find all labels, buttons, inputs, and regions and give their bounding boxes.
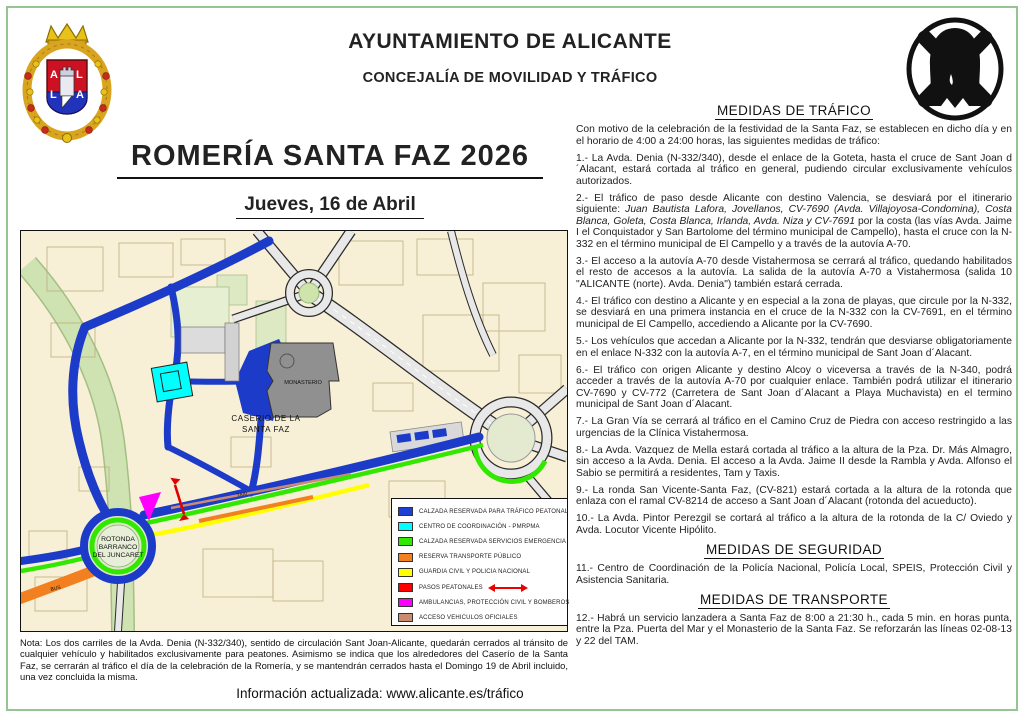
svg-text:L: L	[76, 69, 83, 81]
coordination-center	[151, 362, 192, 402]
traffic-measures-heading: MEDIDAS DE TRÁFICO	[576, 103, 1012, 118]
legend-color-swatch	[398, 583, 413, 592]
legend-label: CENTRO DE COORDINACIÓN - PMRPMA	[419, 524, 540, 530]
traffic-measure-item: 5.- Los vehículos que accedan a Alicante…	[576, 336, 1012, 359]
traffic-map: MONASTERIO CASERIO DE LA SANTA FAZ ROTON…	[20, 230, 568, 632]
svg-text:DEL JUNCARET: DEL JUNCARET	[92, 552, 143, 559]
svg-text:SANTA FAZ: SANTA FAZ	[242, 425, 290, 434]
red-double-arrow-icon	[491, 587, 525, 589]
legend-color-swatch	[398, 522, 413, 531]
alicante-coat-of-arms: AL LA	[18, 20, 116, 144]
legend-item: CENTRO DE COORDINACIÓN - PMRPMA	[398, 520, 562, 533]
svg-text:L: L	[50, 89, 57, 101]
legend-color-swatch	[398, 553, 413, 562]
transport-measures-heading: MEDIDAS DE TRANSPORTE	[576, 592, 1012, 607]
map-legend: CALZADA RESERVADA PARA TRÁFICO PEATONAL …	[391, 498, 568, 626]
legend-color-swatch	[398, 537, 413, 546]
legend-label: CALZADA RESERVADA SERVICIOS EMERGENCIA	[419, 539, 566, 545]
event-title: ROMERÍA SANTA FAZ 2026	[40, 140, 620, 179]
info-url-line: Información actualizada: www.alicante.es…	[160, 686, 600, 701]
transport-measure-item: 12.- Habrá un servicio lanzadera a Santa…	[576, 613, 1012, 648]
svg-text:A: A	[76, 89, 84, 101]
measures-column: MEDIDAS DE TRÁFICO Con motivo de la cele…	[576, 100, 1012, 653]
legend-label: ACCESO VEHICULOS OFICIALES	[419, 615, 518, 621]
legend-label: GUARDIA CIVIL Y POLICIA NACIONAL	[419, 569, 530, 575]
org-title: AYUNTAMIENTO DE ALICANTE	[130, 30, 890, 54]
legend-color-swatch	[398, 568, 413, 577]
traffic-measure-item: 6.- El tráfico con origen Alicante y des…	[576, 365, 1012, 411]
legend-label: AMBULANCIAS, PROTECCIÓN CIVIL Y BOMBEROS	[419, 600, 570, 606]
svg-text:MONASTERIO: MONASTERIO	[284, 380, 322, 386]
legend-item: CALZADA RESERVADA PARA TRÁFICO PEATONAL	[398, 505, 562, 518]
traffic-measure-item: 8.- La Avda. Vazquez de Mella estará cor…	[576, 445, 1012, 480]
security-measures-heading: MEDIDAS DE SEGURIDAD	[576, 542, 1012, 557]
security-measure-item: 11.- Centro de Coordinación de la Policí…	[576, 563, 1012, 586]
svg-text:ROTONDA: ROTONDA	[101, 536, 135, 543]
legend-label: CALZADA RESERVADA PARA TRÁFICO PEATONAL	[419, 509, 568, 515]
traffic-measure-item: 7.- La Gran Vía se cerrará al tráfico en…	[576, 416, 1012, 439]
traffic-measure-item: 9.- La ronda San Vicente-Santa Faz, (CV-…	[576, 485, 1012, 508]
traffic-measure-item: 2.- El tráfico de paso desde Alicante co…	[576, 193, 1012, 251]
svg-text:BARRANCO: BARRANCO	[99, 544, 138, 551]
event-date: Jueves, 16 de Abril	[40, 194, 620, 219]
svg-text:A: A	[50, 69, 58, 81]
traffic-measure-item: 10.- La Avda. Pintor Perezgil se cortará…	[576, 513, 1012, 536]
legend-item: CALZADA RESERVADA SERVICIOS EMERGENCIA	[398, 535, 562, 548]
legend-item: GUARDIA CIVIL Y POLICIA NACIONAL	[398, 566, 562, 579]
legend-color-swatch	[398, 507, 413, 516]
traffic-intro: Con motivo de la celebración de la festi…	[576, 124, 1012, 147]
dept-subtitle: CONCEJALÍA DE MOVILIDAD Y TRÁFICO	[130, 70, 890, 86]
header: AYUNTAMIENTO DE ALICANTE CONCEJALÍA DE M…	[130, 30, 890, 86]
legend-item: ACCESO VEHICULOS OFICIALES	[398, 611, 562, 624]
traffic-measure-item: 3.- El acceso a la autovía A-70 desde Vi…	[576, 256, 1012, 291]
legend-label: PASOS PEATONALES	[419, 585, 483, 591]
legend-item: RESERVA TRANSPORTE PÚBLICO	[398, 551, 562, 564]
legend-color-swatch	[398, 598, 413, 607]
footnote: Nota: Los dos carriles de la Avda. Denia…	[20, 637, 568, 683]
traffic-measure-item: 1.- La Avda. Denia (N-332/340), desde el…	[576, 153, 1012, 188]
flyer-page: AL LA AYUNTAMIENTO DE ALICANTE CONCEJALÍ…	[0, 0, 1024, 717]
svg-text:CASERIO DE LA: CASERIO DE LA	[231, 414, 300, 423]
legend-item: AMBULANCIAS, PROTECCIÓN CIVIL Y BOMBEROS	[398, 596, 562, 609]
legend-label: RESERVA TRANSPORTE PÚBLICO	[419, 554, 521, 560]
legend-color-swatch	[398, 613, 413, 622]
legend-item: PASOS PEATONALES	[398, 581, 562, 594]
traffic-measure-item: 4.- El tráfico con destino a Alicante y …	[576, 296, 1012, 331]
